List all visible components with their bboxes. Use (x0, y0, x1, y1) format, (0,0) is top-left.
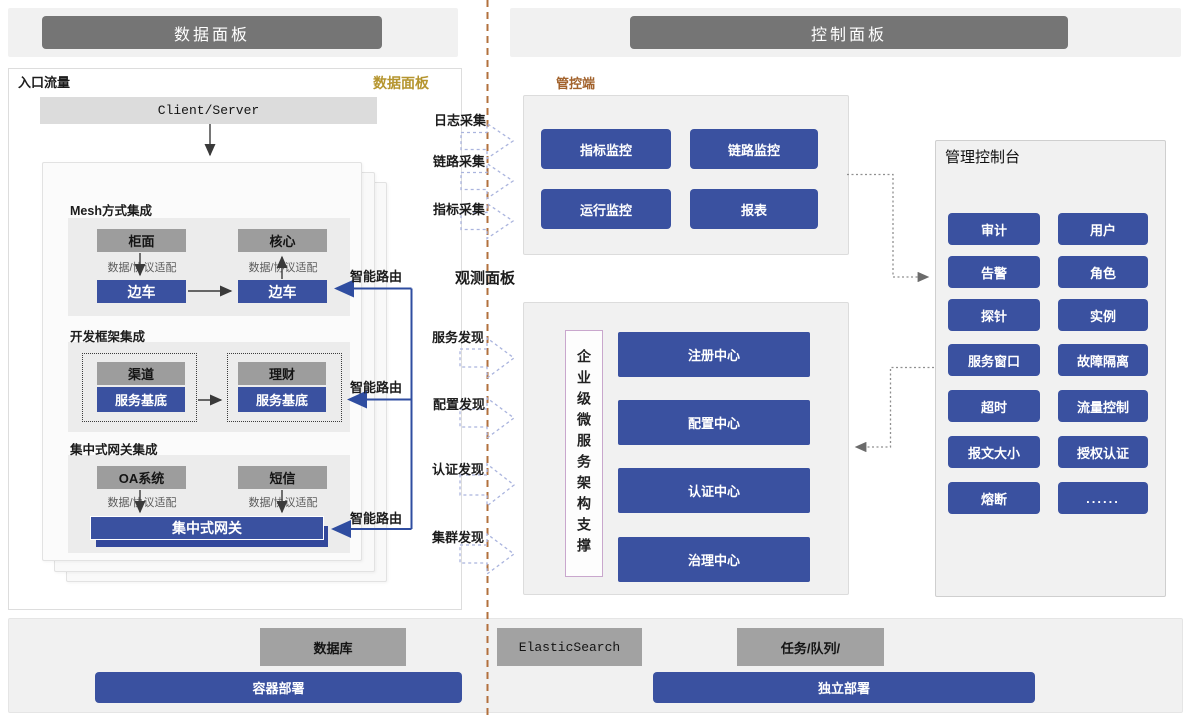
management-console-title: 管理控制台 (945, 146, 1020, 167)
gateway-adapter-left-label: 数据/协议适配 (102, 494, 182, 510)
gateway-adapter-right-label: 数据/协议适配 (243, 494, 323, 510)
mesh-section-title: Mesh方式集成 (70, 200, 152, 219)
data-plane-corner-label: 数据面板 (373, 73, 429, 93)
flow-label-cluster-discovery: 集群发现 (432, 527, 484, 546)
governance-center-bar: 治理中心 (618, 537, 810, 582)
sms-node: 短信 (238, 466, 327, 489)
elasticsearch-node: ElasticSearch (497, 628, 642, 666)
mesh-counter-node: 柜面 (97, 229, 186, 252)
microservice-support-vertical-label: 企业级微服务架构支撑 (565, 330, 603, 577)
config-center-bar: 配置中心 (618, 400, 810, 445)
mesh-adapter-left-label: 数据/协议适配 (102, 259, 182, 275)
auth-center-bar: 认证中心 (618, 468, 810, 513)
service-base-right-node: 服务基底 (238, 387, 326, 412)
console-button-authz: 授权认证 (1058, 436, 1148, 468)
flow-label-config-discovery: 配置发现 (433, 394, 485, 413)
monitor-button-metrics: 指标监控 (541, 129, 671, 169)
smart-route-label-2: 智能路由 (350, 377, 402, 396)
entry-traffic-label: 入口流量 (18, 72, 70, 91)
console-button-fault-isolation: 故障隔离 (1058, 344, 1148, 376)
task-queue-node: 任务/队列/ (737, 628, 884, 666)
registry-center-bar: 注册中心 (618, 332, 810, 377)
console-button-probe: 探针 (948, 299, 1040, 331)
smart-route-label-3: 智能路由 (350, 508, 402, 527)
data-plane-header: 数据面板 (42, 16, 382, 49)
collect-arrow-icons (461, 124, 513, 239)
container-deploy-bar: 容器部署 (95, 672, 462, 703)
framework-section-title: 开发框架集成 (70, 326, 145, 345)
sidecar-right-node: 边车 (238, 280, 327, 303)
smart-route-label-1: 智能路由 (350, 266, 402, 285)
wealth-node: 理财 (238, 362, 326, 385)
monitor-button-report: 报表 (690, 189, 818, 229)
console-button-flow-control: 流量控制 (1058, 390, 1148, 422)
channel-node: 渠道 (97, 362, 185, 385)
control-plane-header: 控制面板 (630, 16, 1068, 49)
flow-label-log-collect: 日志采集 (434, 110, 486, 129)
oa-system-node: OA系统 (97, 466, 186, 489)
sidecar-left-node: 边车 (97, 280, 186, 303)
console-button-timeout: 超时 (948, 390, 1040, 422)
console-button-message-size: 报文大小 (948, 436, 1040, 468)
flow-label-service-discovery: 服务发现 (432, 327, 484, 346)
standalone-deploy-bar: 独立部署 (653, 672, 1035, 703)
observe-panel-label: 观测面板 (455, 267, 515, 288)
console-button-instance: 实例 (1058, 299, 1148, 331)
monitor-button-runtime: 运行监控 (541, 189, 671, 229)
console-button-service-window: 服务窗口 (948, 344, 1040, 376)
console-button-more: ...... (1058, 482, 1148, 514)
central-gateway-node: 集中式网关 (90, 516, 324, 540)
dotted-connectors (847, 175, 934, 448)
manage-side-label: 管控端 (556, 73, 595, 92)
mesh-core-node: 核心 (238, 229, 327, 252)
architecture-diagram: 数据面板 控制面板 入口流量 数据面板 Client/Server Mesh方式… (0, 0, 1189, 720)
console-button-audit: 审计 (948, 213, 1040, 245)
monitor-button-trace: 链路监控 (690, 129, 818, 169)
mesh-adapter-right-label: 数据/协议适配 (243, 259, 323, 275)
flow-label-trace-collect: 链路采集 (433, 151, 485, 170)
client-server-node: Client/Server (40, 97, 377, 124)
flow-label-metric-collect: 指标采集 (433, 199, 485, 218)
manage-panel (523, 95, 849, 255)
gateway-section-title: 集中式网关集成 (70, 439, 158, 458)
console-button-user: 用户 (1058, 213, 1148, 245)
database-node: 数据库 (260, 628, 406, 666)
service-base-left-node: 服务基底 (97, 387, 185, 412)
console-button-circuit-break: 熔断 (948, 482, 1040, 514)
flow-label-auth-discovery: 认证发现 (432, 459, 484, 478)
console-button-role: 角色 (1058, 256, 1148, 288)
console-button-alert: 告警 (948, 256, 1040, 288)
